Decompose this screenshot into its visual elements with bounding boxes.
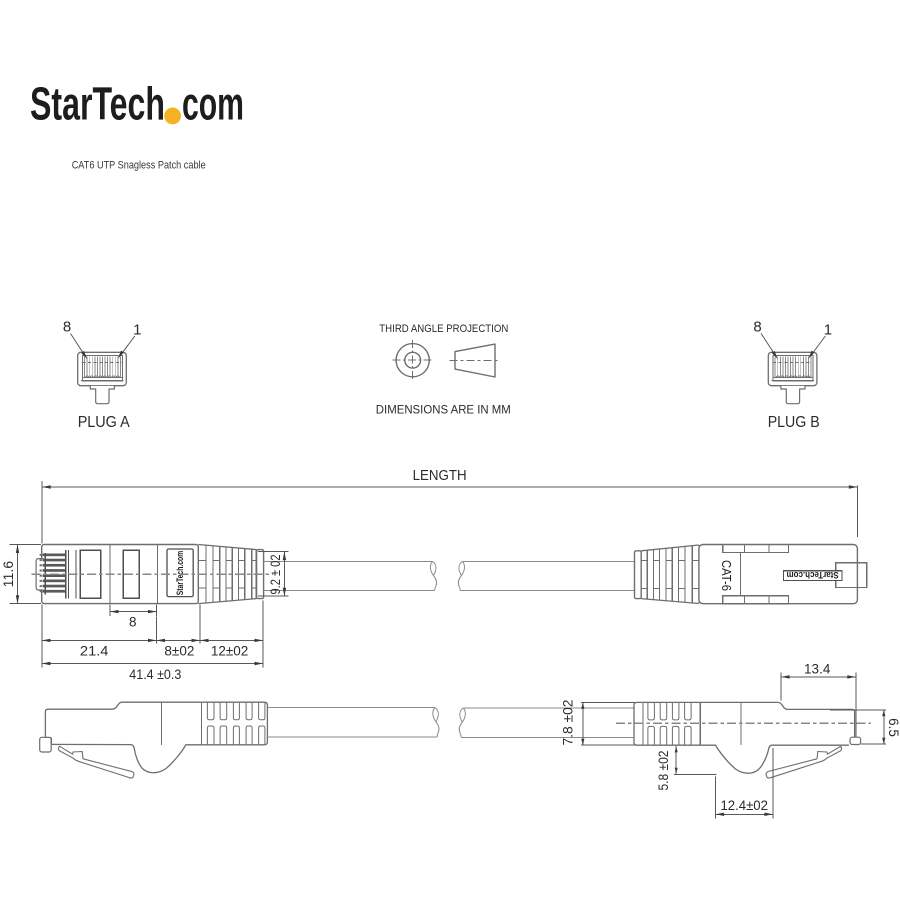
svg-text:CAT-6: CAT-6 <box>719 560 734 591</box>
svg-text:PLUG B: PLUG B <box>768 414 820 431</box>
svg-text:8±02: 8±02 <box>164 644 194 659</box>
svg-text:8: 8 <box>753 319 761 336</box>
svg-text:1: 1 <box>824 321 832 338</box>
svg-text:8: 8 <box>63 319 71 336</box>
svg-text:DIMENSIONS ARE IN MM: DIMENSIONS ARE IN MM <box>376 402 511 416</box>
svg-text:9.2 ± 02: 9.2 ± 02 <box>268 555 283 595</box>
svg-text:com: com <box>182 78 244 130</box>
svg-text:StarTech: StarTech <box>30 78 165 130</box>
svg-text:StarTech.com: StarTech.com <box>787 569 839 580</box>
svg-text:21.4: 21.4 <box>80 644 109 659</box>
svg-text:LENGTH: LENGTH <box>413 467 467 484</box>
svg-text:StarTech.com: StarTech.com <box>175 551 185 596</box>
svg-text:THIRD ANGLE PROJECTION: THIRD ANGLE PROJECTION <box>379 323 508 335</box>
svg-text:11.6: 11.6 <box>1 561 16 588</box>
svg-text:5.8 ±02: 5.8 ±02 <box>656 751 671 791</box>
svg-text:6.5: 6.5 <box>886 718 900 737</box>
svg-text:12.4±02: 12.4±02 <box>720 798 768 813</box>
svg-text:PLUG A: PLUG A <box>78 414 131 431</box>
svg-text:1: 1 <box>133 321 141 338</box>
svg-text:13.4: 13.4 <box>804 662 831 677</box>
svg-text:12±02: 12±02 <box>211 644 248 659</box>
svg-text:7.8 ±02: 7.8 ±02 <box>561 700 576 746</box>
svg-text:8: 8 <box>129 614 137 629</box>
svg-text:41.4 ±0.3: 41.4 ±0.3 <box>129 667 181 682</box>
svg-text:CAT6 UTP Snagless Patch cable: CAT6 UTP Snagless Patch cable <box>72 159 206 171</box>
